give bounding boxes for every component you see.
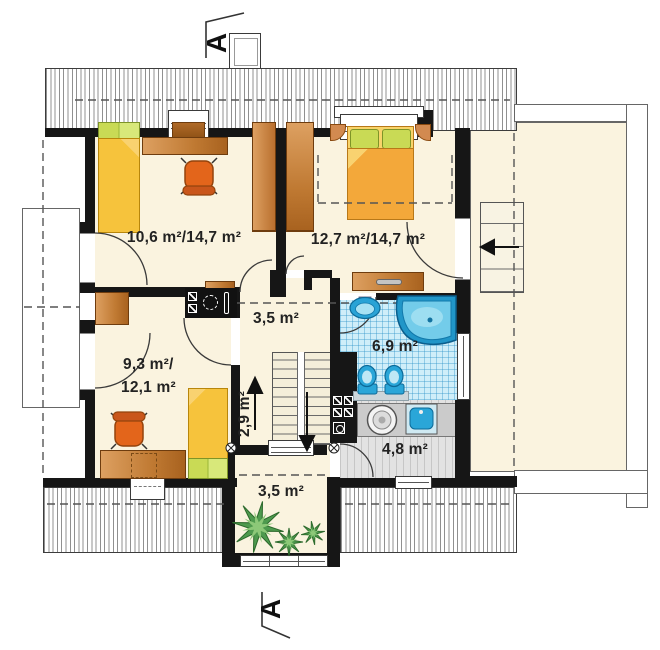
- desk-chair-icon: [111, 412, 147, 449]
- utility-area-label: 4,8 m²: [374, 441, 436, 459]
- staircase-area-label: 2,9 m²: [236, 383, 254, 445]
- section-marker-bottom-label: A: [255, 592, 287, 626]
- plant-icon: [275, 528, 303, 556]
- section-marker-top-label: A: [201, 26, 233, 60]
- washbasin-icon: [350, 297, 380, 319]
- bathroom-area-label: 6,9 m²: [365, 338, 425, 356]
- stairs-down-arrow-icon: [300, 392, 314, 450]
- bedroom-right-area-label: 12,7 m²/14,7 m²: [300, 231, 436, 249]
- toilet-icon: [358, 366, 377, 395]
- bedroom-left-area-label: 10,6 m²/14,7 m²: [116, 229, 252, 247]
- lower-bedroom-area-label-line1: 9,3 m²/: [123, 356, 193, 374]
- plant-icon: [299, 519, 326, 546]
- hall-area-label: 3,5 m²: [246, 310, 306, 328]
- toilet-icon: [385, 366, 404, 395]
- balcony-area-label: 3,5 m²: [250, 483, 312, 501]
- plan-overlay: [0, 0, 660, 650]
- laundry-sink-icon: [406, 404, 437, 434]
- desk-chair-icon: [181, 158, 217, 195]
- lower-bedroom-area-label-line2: 12,1 m²: [121, 379, 191, 397]
- washing-machine-icon: [368, 406, 397, 435]
- plant-icon: [228, 497, 288, 557]
- floor-plan: 10,6 m²/14,7 m² 12,7 m²/14,7 m² 3,5 m² 6…: [0, 0, 660, 650]
